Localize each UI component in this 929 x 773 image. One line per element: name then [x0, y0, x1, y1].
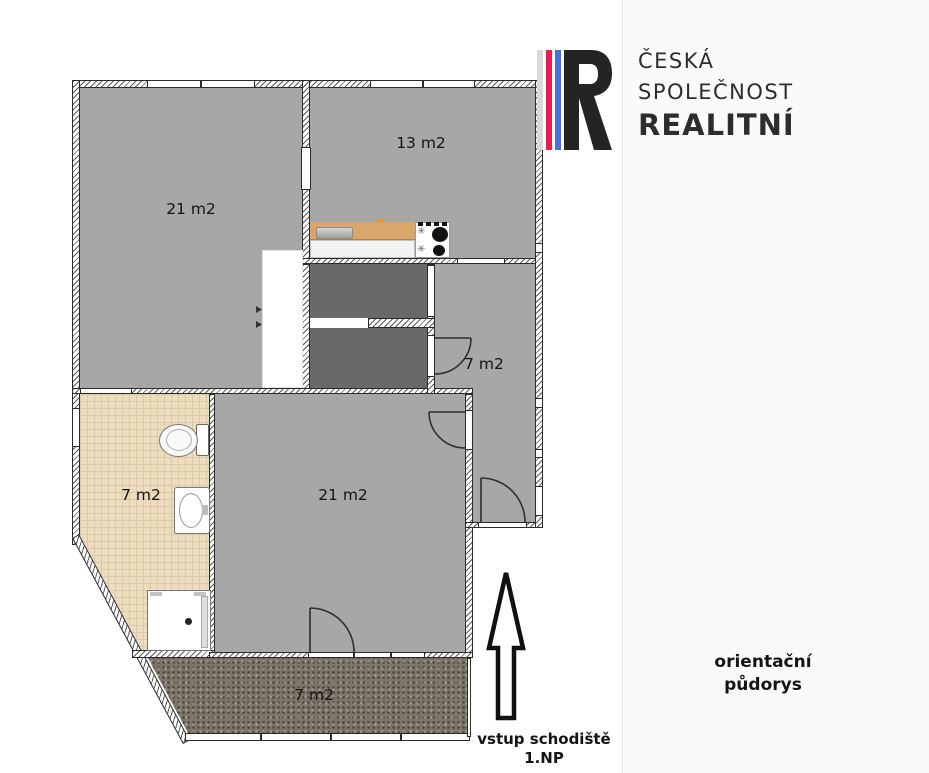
closet-floor-1 — [310, 264, 427, 318]
door-opening — [457, 258, 505, 264]
brand-logo-r-icon — [564, 50, 612, 150]
closet-divider — [310, 318, 368, 328]
wall — [302, 258, 543, 264]
stove-knob — [434, 222, 439, 226]
room-area-label: 21 m2 — [166, 200, 216, 218]
wall-joint — [535, 449, 543, 458]
door-opening — [465, 410, 473, 450]
room-area-label: 21 m2 — [318, 486, 368, 504]
wall-joint — [535, 486, 543, 516]
room-area-label: 7 m2 — [121, 486, 161, 504]
washbasin-faucet — [202, 505, 208, 515]
shower-drain — [185, 618, 192, 625]
terrace-side-railing — [467, 658, 471, 737]
entrance-label-line2: 1.NP — [454, 749, 634, 768]
logo-stripe-gray — [537, 50, 543, 150]
door-opening — [427, 335, 435, 377]
railing-post — [260, 734, 262, 740]
stove-burner-small — [433, 245, 445, 256]
brand-name-line3: REALITNÍ — [638, 108, 795, 142]
plan-caption: orientační půdorys — [663, 651, 863, 697]
shower-panel — [201, 596, 208, 648]
door-opening — [478, 522, 527, 528]
logo-stripe-red — [546, 50, 552, 150]
washbasin-bowl — [179, 493, 203, 528]
wall — [368, 318, 435, 328]
door-opening — [301, 147, 311, 190]
kitchen-cabinet — [310, 240, 415, 258]
wall — [132, 650, 215, 658]
wall-joint — [535, 243, 543, 253]
stove-burner-large — [432, 227, 448, 242]
window — [72, 408, 80, 447]
window-mullion — [390, 653, 392, 658]
wall-joint — [535, 398, 543, 408]
toilet-bowl-inner — [166, 429, 192, 451]
closet-floor-2 — [310, 328, 427, 388]
counter-knob — [377, 219, 384, 223]
plan-caption-line1: orientační — [663, 651, 863, 674]
floor-plan-page: ✳ ✳ 21 m2 13 m2 7 m2 7 m2 21 m2 7 m2 vst… — [0, 0, 929, 773]
shower-control — [150, 592, 162, 596]
railing-post — [400, 734, 402, 740]
stove-knob — [442, 222, 447, 226]
entrance-label: vstup schodiště 1.NP — [454, 730, 634, 768]
wall — [72, 388, 473, 394]
wall — [72, 80, 80, 545]
plan-caption-line2: půdorys — [663, 674, 863, 697]
window-mullion — [200, 81, 202, 87]
wall — [302, 264, 310, 394]
room-area-label: 7 m2 — [464, 355, 504, 373]
room-area-label: 13 m2 — [396, 134, 446, 152]
railing-post — [330, 734, 332, 740]
brand-panel: ČESKÁ SPOLEČNOST REALITNÍ orientační půd… — [622, 0, 929, 773]
room-floor-hallway-lower — [473, 388, 535, 522]
brand-name-line2: SPOLEČNOST — [638, 80, 794, 104]
room-floor-living — [215, 394, 465, 652]
kitchen-sink — [316, 227, 353, 239]
door-opening — [80, 388, 132, 394]
terrace-door-window — [308, 652, 425, 658]
burner-symbol-icon: ✳ — [417, 244, 429, 256]
burner-symbol-icon: ✳ — [417, 226, 429, 238]
entrance-label-line1: vstup schodiště — [454, 730, 634, 749]
brand-name-line1: ČESKÁ — [638, 49, 715, 73]
terrace-railing — [185, 733, 470, 741]
logo-stripe-blue — [555, 50, 561, 150]
window-mullion — [353, 653, 355, 658]
window-mullion — [422, 81, 424, 87]
wardrobe — [262, 250, 303, 388]
door-opening — [427, 265, 435, 317]
room-area-label: 7 m2 — [294, 686, 334, 704]
